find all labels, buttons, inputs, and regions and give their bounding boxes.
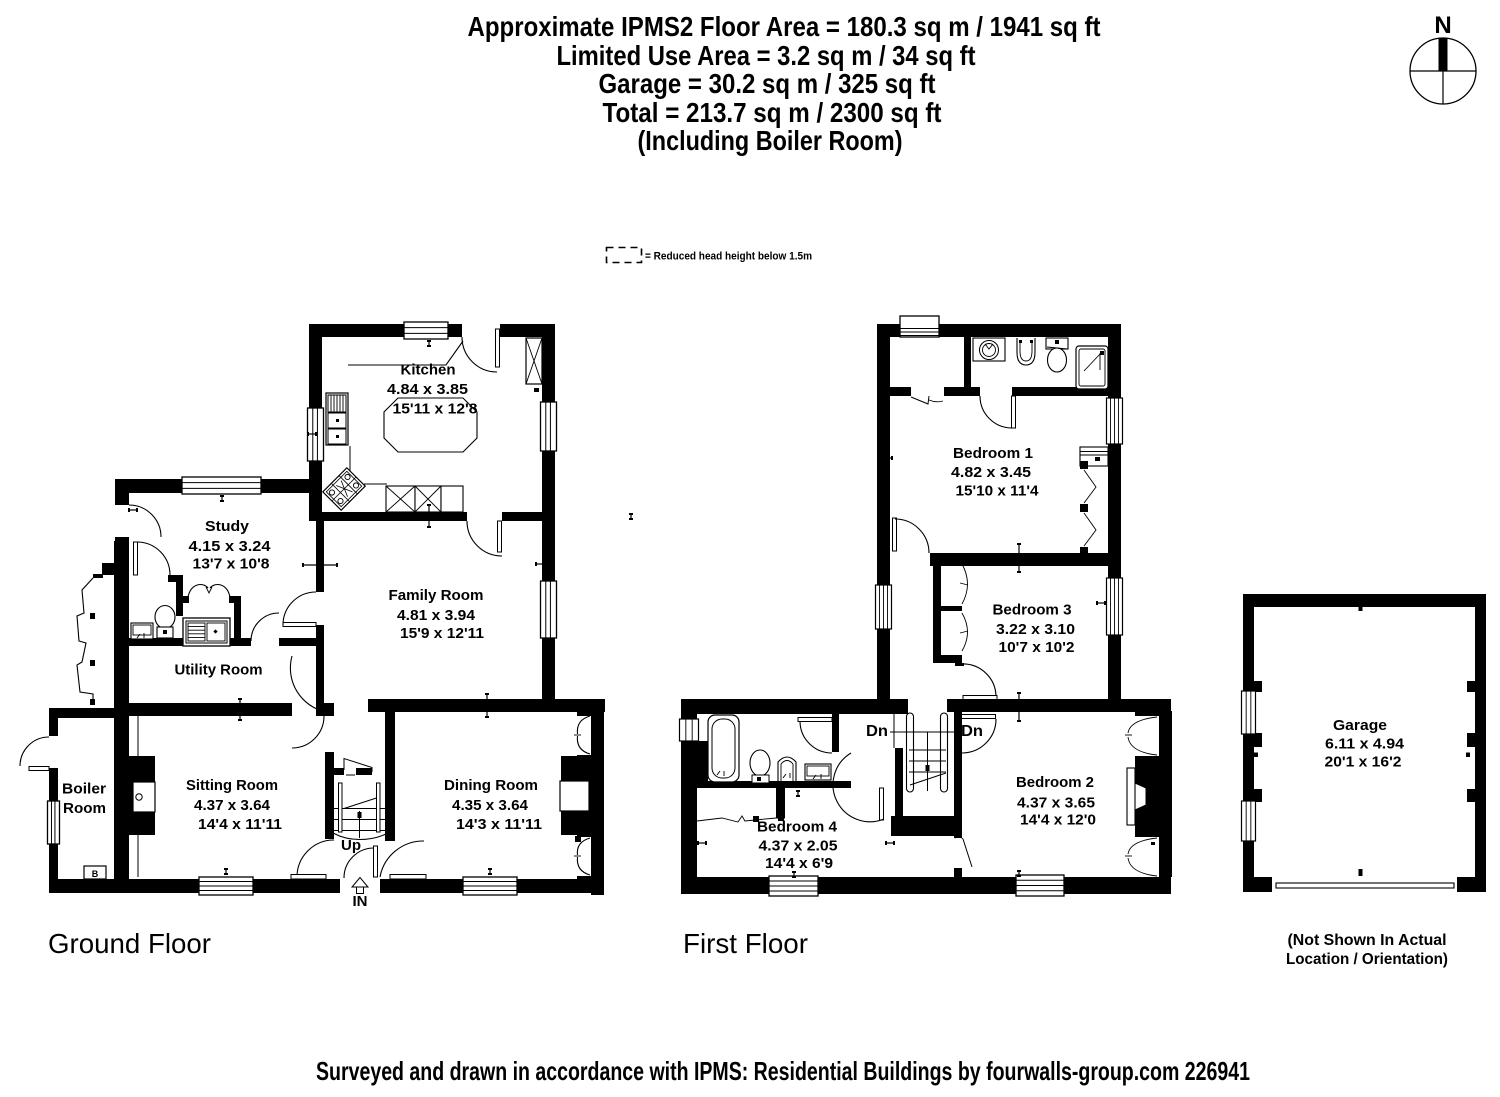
svg-text:= Reduced head height below 1.: = Reduced head height below 1.5m: [645, 251, 812, 263]
svg-text:Sitting Room: Sitting Room: [186, 777, 278, 794]
svg-text:Bedroom 1: Bedroom 1: [953, 445, 1033, 462]
svg-text:14'3 x 11'11: 14'3 x 11'11: [456, 816, 542, 833]
svg-text:Garage = 30.2 sq m / 325 sq ft: Garage = 30.2 sq m / 325 sq ft: [599, 68, 936, 99]
svg-text:14'4 x 11'11: 14'4 x 11'11: [198, 816, 282, 833]
svg-text:4.82 x 3.45: 4.82 x 3.45: [951, 464, 1031, 481]
svg-text:N: N: [1434, 12, 1451, 39]
svg-text:Surveyed and drawn in accordan: Surveyed and drawn in accordance with IP…: [316, 1056, 1250, 1086]
svg-text:4.35 x 3.64: 4.35 x 3.64: [452, 797, 529, 814]
svg-text:15'11 x 12'8: 15'11 x 12'8: [393, 401, 478, 418]
svg-text:20'1 x 16'2: 20'1 x 16'2: [1325, 754, 1402, 771]
svg-text:15'10 x 11'4: 15'10 x 11'4: [956, 483, 1040, 500]
svg-text:Up: Up: [341, 837, 361, 854]
svg-text:IN: IN: [353, 893, 368, 910]
svg-text:3.22 x 3.10: 3.22 x 3.10: [996, 621, 1075, 638]
svg-text:4.37 x 2.05: 4.37 x 2.05: [759, 838, 838, 855]
svg-text:Garage: Garage: [1333, 717, 1387, 734]
svg-text:14'4 x 6'9: 14'4 x 6'9: [765, 855, 833, 872]
svg-text:Study: Study: [205, 518, 250, 535]
svg-text:14'4 x 12'0: 14'4 x 12'0: [1020, 812, 1096, 829]
svg-text:Dn: Dn: [866, 723, 888, 740]
svg-text:Bedroom 3: Bedroom 3: [993, 602, 1072, 619]
svg-text:First Floor: First Floor: [683, 928, 808, 959]
svg-text:Approximate IPMS2 Floor Area =: Approximate IPMS2 Floor Area = 180.3 sq …: [468, 11, 1101, 42]
svg-text:B: B: [92, 869, 99, 879]
svg-text:4.84 x 3.85: 4.84 x 3.85: [387, 381, 468, 398]
svg-text:Utility Room: Utility Room: [175, 662, 263, 679]
svg-text:4.15 x 3.24: 4.15 x 3.24: [189, 538, 272, 555]
svg-text:15'9 x 12'11: 15'9 x 12'11: [400, 625, 484, 642]
svg-text:Dining Room: Dining Room: [444, 777, 538, 794]
svg-text:Family Room: Family Room: [389, 587, 484, 604]
svg-text:(Including Boiler Room): (Including Boiler Room): [638, 125, 903, 156]
svg-text:Bedroom 2: Bedroom 2: [1016, 774, 1094, 791]
svg-text:13'7 x 10'8: 13'7 x 10'8: [193, 556, 270, 573]
svg-text:Room: Room: [63, 800, 106, 817]
svg-text:10'7 x 10'2: 10'7 x 10'2: [999, 639, 1075, 656]
svg-text:Bedroom 4: Bedroom 4: [757, 819, 838, 836]
svg-text:4.37 x 3.64: 4.37 x 3.64: [194, 797, 271, 814]
svg-text:Dn: Dn: [961, 723, 983, 740]
svg-text:Boiler: Boiler: [62, 781, 106, 798]
svg-text:Limited Use Area = 3.2 sq m /: Limited Use Area = 3.2 sq m / 34 sq ft: [557, 40, 976, 71]
svg-text:Total = 213.7 sq m / 2300 sq f: Total = 213.7 sq m / 2300 sq ft: [603, 97, 942, 128]
svg-text:4.81 x 3.94: 4.81 x 3.94: [397, 607, 476, 624]
svg-text:6.11 x 4.94: 6.11 x 4.94: [1325, 736, 1405, 753]
svg-text:Location / Orientation): Location / Orientation): [1286, 951, 1448, 968]
svg-text:(Not Shown In Actual: (Not Shown In Actual: [1288, 932, 1447, 949]
svg-text:4.37 x 3.65: 4.37 x 3.65: [1017, 795, 1095, 812]
svg-text:Kitchen: Kitchen: [401, 362, 456, 379]
svg-text:Ground Floor: Ground Floor: [48, 928, 211, 959]
